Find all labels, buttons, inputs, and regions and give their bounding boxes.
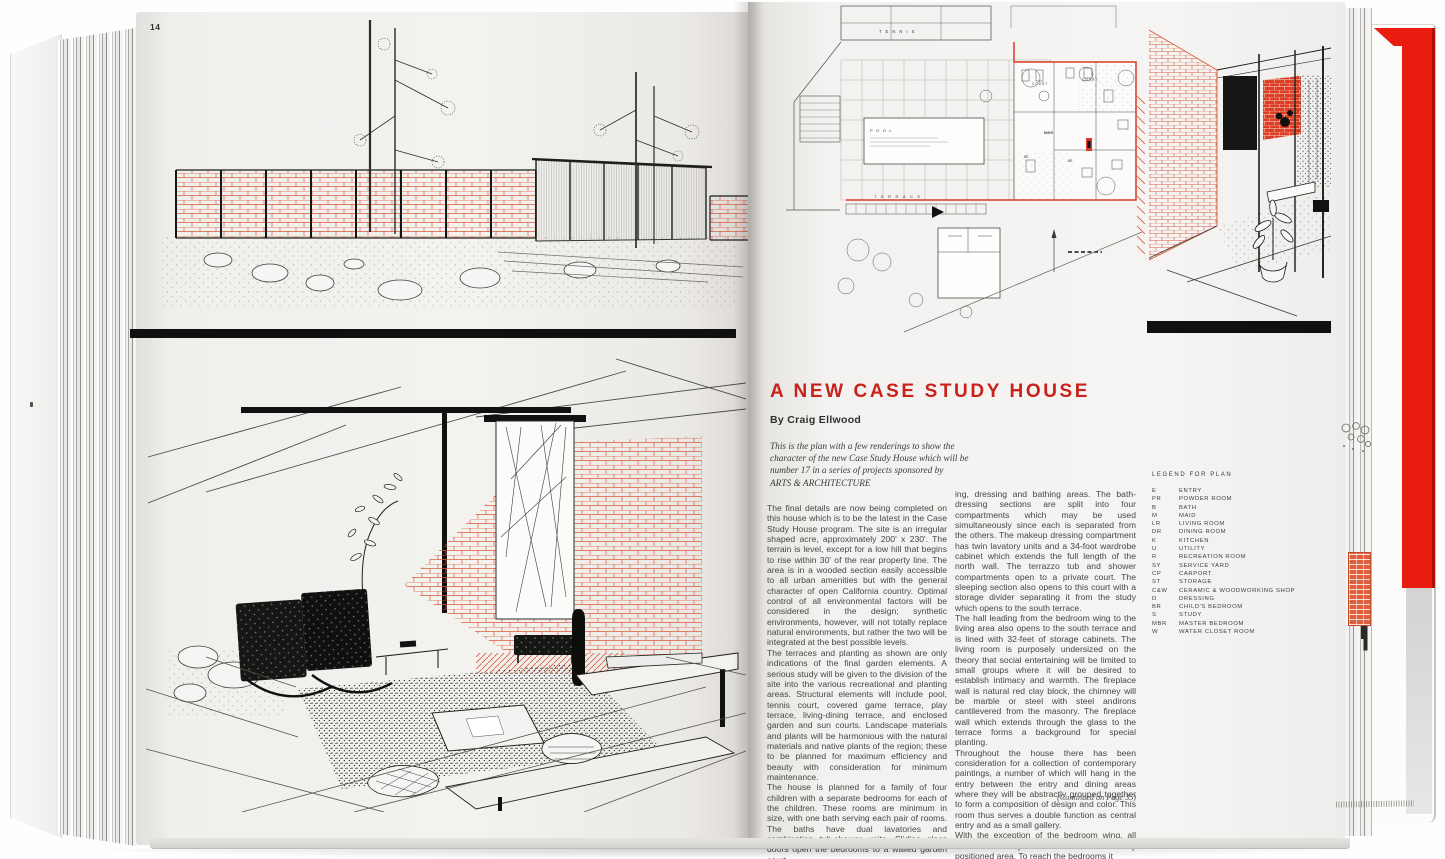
divider-rule-left-page bbox=[130, 329, 736, 338]
plan-label-terrace: TERRACE bbox=[874, 194, 925, 199]
legend-item: LRLIVING ROOM bbox=[1152, 520, 1332, 528]
legend-item: PRPOWDER ROOM bbox=[1152, 495, 1332, 503]
legend-item: EENTRY bbox=[1152, 487, 1332, 495]
legend-item: KKITCHEN bbox=[1152, 537, 1332, 545]
bottom-page-edge bbox=[150, 838, 1350, 849]
article-column-2: ing, dressing and bathing areas. The bat… bbox=[955, 489, 1136, 859]
plan-label-br-2: BR bbox=[1068, 159, 1073, 163]
cover-red-band bbox=[1402, 28, 1435, 588]
cover-edge-lower bbox=[1406, 588, 1432, 814]
article-byline: By Craig Ellwood bbox=[770, 414, 861, 426]
legend-item: MBRMASTER BEDROOM bbox=[1152, 620, 1332, 628]
plan-legend: LEGEND FOR PLAN EENTRYPRPOWDER ROOMBBATH… bbox=[1152, 472, 1332, 636]
courtyard-rendering-figure bbox=[1147, 20, 1333, 320]
book-photo-scene: 14 bbox=[0, 0, 1445, 859]
legend-title: LEGEND FOR PLAN bbox=[1152, 472, 1332, 478]
divider-rule-right-page bbox=[1147, 321, 1331, 333]
legend-item: DDRESSING bbox=[1152, 595, 1332, 603]
legend-item: UUTILITY bbox=[1152, 545, 1332, 553]
floor-plan-figure: TENNIS TERRACE POOL bbox=[786, 0, 1146, 340]
book-gutter-shadow bbox=[733, 2, 763, 845]
legend-item: C&WCERAMIC & WOODWORKING SHOP bbox=[1152, 587, 1332, 595]
article-intro: This is the plan with a few renderings t… bbox=[770, 441, 1000, 490]
plan-label-br-1: BR bbox=[1024, 155, 1029, 159]
legend-item: BRCHILD'S BEDROOM bbox=[1152, 603, 1332, 611]
plan-label-court-2: COURT bbox=[1082, 78, 1098, 82]
plant-doodle bbox=[1338, 420, 1374, 466]
interior-rendering-figure bbox=[146, 357, 746, 812]
legend-item: CPCARPORT bbox=[1152, 570, 1332, 578]
legend-item: SSTUDY bbox=[1152, 611, 1332, 619]
plan-label-tennis: TENNIS bbox=[879, 29, 918, 34]
legend-item: SYSERVICE YARD bbox=[1152, 562, 1332, 570]
legend-item: RRECREATION ROOM bbox=[1152, 553, 1332, 561]
plan-label-court-1: COURT bbox=[1032, 82, 1048, 86]
exterior-rendering-figure bbox=[148, 20, 748, 328]
cover-speck bbox=[30, 402, 33, 407]
plan-label-pool: POOL bbox=[870, 128, 895, 133]
legend-item: STSTORAGE bbox=[1152, 578, 1332, 586]
legend-list: EENTRYPRPOWDER ROOMBBATHMMAIDLRLIVING RO… bbox=[1152, 487, 1332, 636]
brick-doodle bbox=[1348, 552, 1371, 626]
legend-item: MMAID bbox=[1152, 512, 1332, 520]
legend-item: BBATH bbox=[1152, 504, 1332, 512]
legend-item: DRDINING ROOM bbox=[1152, 528, 1332, 536]
plan-label-mbr: MBR bbox=[1044, 131, 1054, 135]
book-cover-left-edge bbox=[10, 34, 62, 838]
page-stack-fore-edge bbox=[58, 28, 136, 846]
legend-item: WWATER CLOSET ROOM bbox=[1152, 628, 1332, 636]
continued-note: (Continued on Page 35) bbox=[955, 793, 1136, 802]
article-title: A NEW CASE STUDY HOUSE bbox=[770, 381, 1190, 403]
book-shadow bbox=[60, 849, 1390, 859]
article-column-1: The final details are now being complete… bbox=[767, 503, 947, 859]
